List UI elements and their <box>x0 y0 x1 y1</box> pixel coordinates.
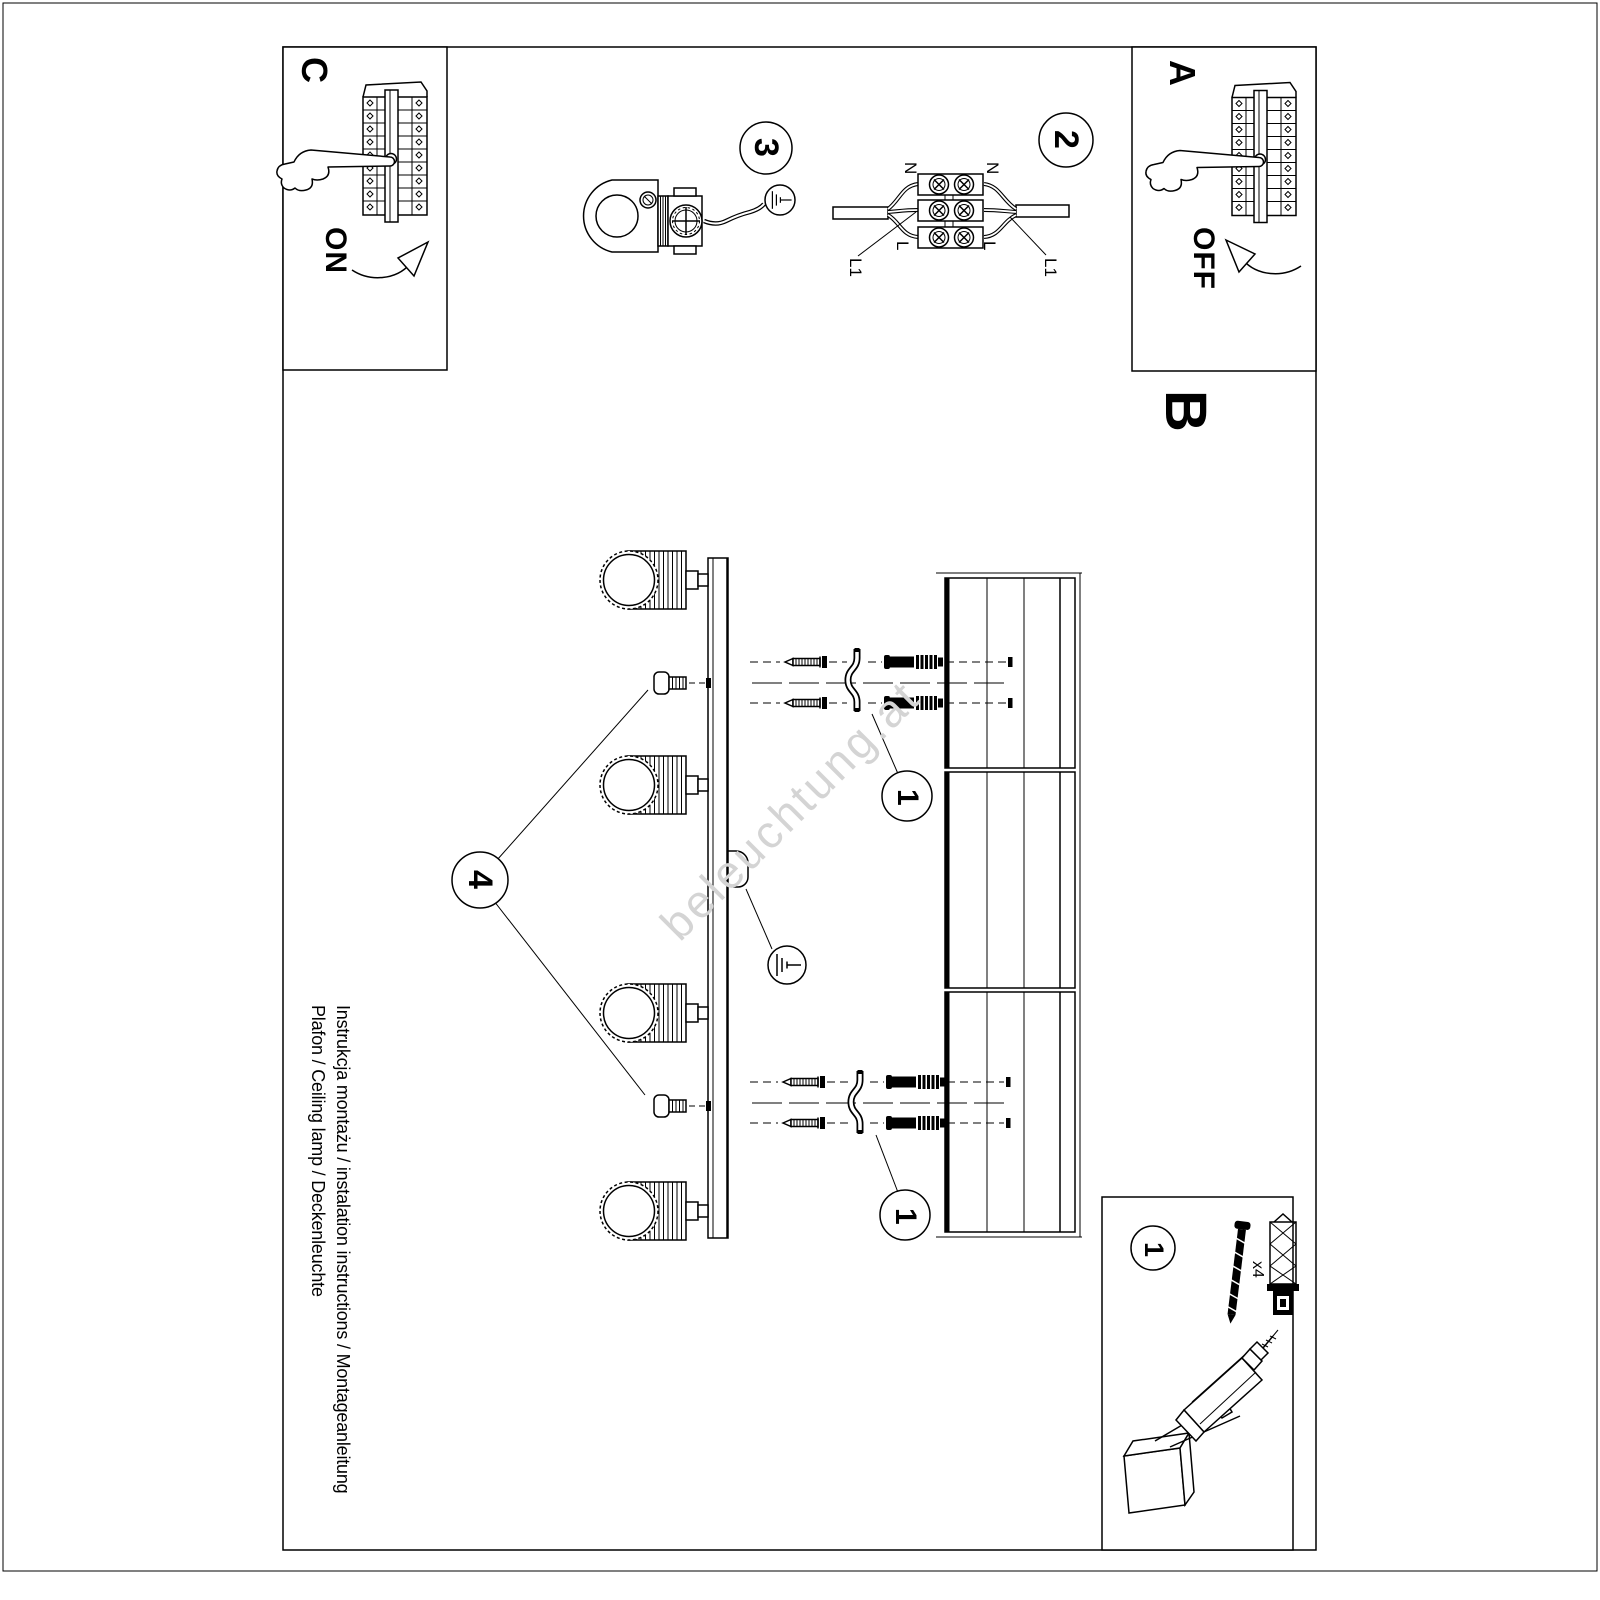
section-a-label: A <box>1164 60 1200 86</box>
footer-title-line1: Instrukcja montażu / instalation instruc… <box>334 1005 352 1493</box>
footer-title-line2: Plafon / Ceiling lamp / Deckenleuchte <box>309 1005 327 1297</box>
screw-quantity-label: x4 <box>1249 1261 1265 1278</box>
instruction-sheet: C ON A OFF B 3 2 4 1 1 1 N N L L L1 L1 x… <box>0 0 1600 1600</box>
wire-label-l-right: L <box>981 241 998 250</box>
wire-label-l-left: L <box>894 241 911 250</box>
step-3-badge: 3 <box>749 138 783 157</box>
wire-label-n-right: N <box>984 162 1001 174</box>
step-2-badge: 2 <box>1049 130 1083 149</box>
l1-leader-right <box>1010 217 1046 255</box>
cable-left <box>833 207 888 219</box>
wire-label-l1-right: L1 <box>1042 258 1059 277</box>
lamp-holder-drawing <box>584 180 764 254</box>
switch-on-label: ON <box>320 227 350 274</box>
step-1-badge-bottom: 1 <box>890 1208 920 1225</box>
section-c-label: C <box>296 57 332 83</box>
wire-label-l1-left: L1 <box>847 258 864 277</box>
ceiling-slabs <box>936 573 1082 1237</box>
switch-off-label: OFF <box>1188 227 1218 290</box>
terminal-block-drawing <box>833 174 1069 256</box>
section-b-label: B <box>1156 390 1214 432</box>
wire-label-n-left: N <box>902 162 919 174</box>
step-1-badge-top: 1 <box>892 789 922 806</box>
earth-wire <box>704 204 764 224</box>
step-4-badge: 4 <box>463 870 497 889</box>
hardware-lower <box>750 1070 1011 1195</box>
cable-right <box>1016 205 1069 217</box>
parts-badge: 1 <box>1140 1242 1167 1257</box>
